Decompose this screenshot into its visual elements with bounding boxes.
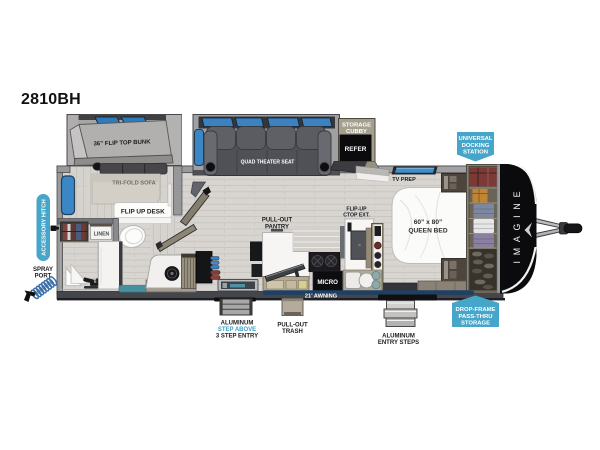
svg-text:60” x 80”: 60” x 80” [414,219,443,226]
svg-text:21’ AWNING: 21’ AWNING [305,294,338,300]
svg-text:PULL-OUT: PULL-OUT [262,218,293,224]
svg-text:STORAGE: STORAGE [461,321,490,327]
svg-text:STEP ABOVE: STEP ABOVE [218,327,256,333]
svg-text:QUEEN BED: QUEEN BED [408,228,447,235]
svg-text:PASS-THRU: PASS-THRU [459,314,493,320]
svg-text:3 STEP ENTRY: 3 STEP ENTRY [216,334,258,340]
svg-text:DOCKING: DOCKING [462,143,490,149]
svg-text:FLIP UP DESK: FLIP UP DESK [121,209,165,216]
svg-text:TV PREP: TV PREP [392,177,416,183]
svg-text:CTOP EXT.: CTOP EXT. [343,213,370,219]
svg-text:PULL-OUT: PULL-OUT [277,323,308,329]
svg-text:QUAD THEATER SEAT: QUAD THEATER SEAT [241,160,295,166]
svg-text:TRI-FOLD SOFA: TRI-FOLD SOFA [112,181,156,187]
svg-text:IMAGINE: IMAGINE [512,186,522,264]
svg-text:SPRAY: SPRAY [33,267,53,273]
svg-text:ACCESSORY HITCH: ACCESSORY HITCH [42,199,48,256]
svg-text:ALUMINUM: ALUMINUM [221,321,254,327]
svg-text:ALUMINUM: ALUMINUM [382,334,415,340]
svg-text:UNIVERSAL: UNIVERSAL [458,136,492,142]
svg-text:TRASH: TRASH [282,329,303,335]
svg-text:DROP-FRAME: DROP-FRAME [456,307,496,313]
svg-text:PANTRY: PANTRY [265,224,289,230]
svg-text:2810BH: 2810BH [21,91,81,108]
svg-text:MICRO: MICRO [317,279,338,286]
svg-text:ENTRY STEPS: ENTRY STEPS [378,340,419,346]
svg-text:STORAGE: STORAGE [342,123,371,129]
svg-text:LINEN: LINEN [94,232,110,238]
svg-text:STATION: STATION [463,150,488,156]
svg-text:CUBBY: CUBBY [346,129,367,135]
svg-text:REFER: REFER [345,146,367,153]
